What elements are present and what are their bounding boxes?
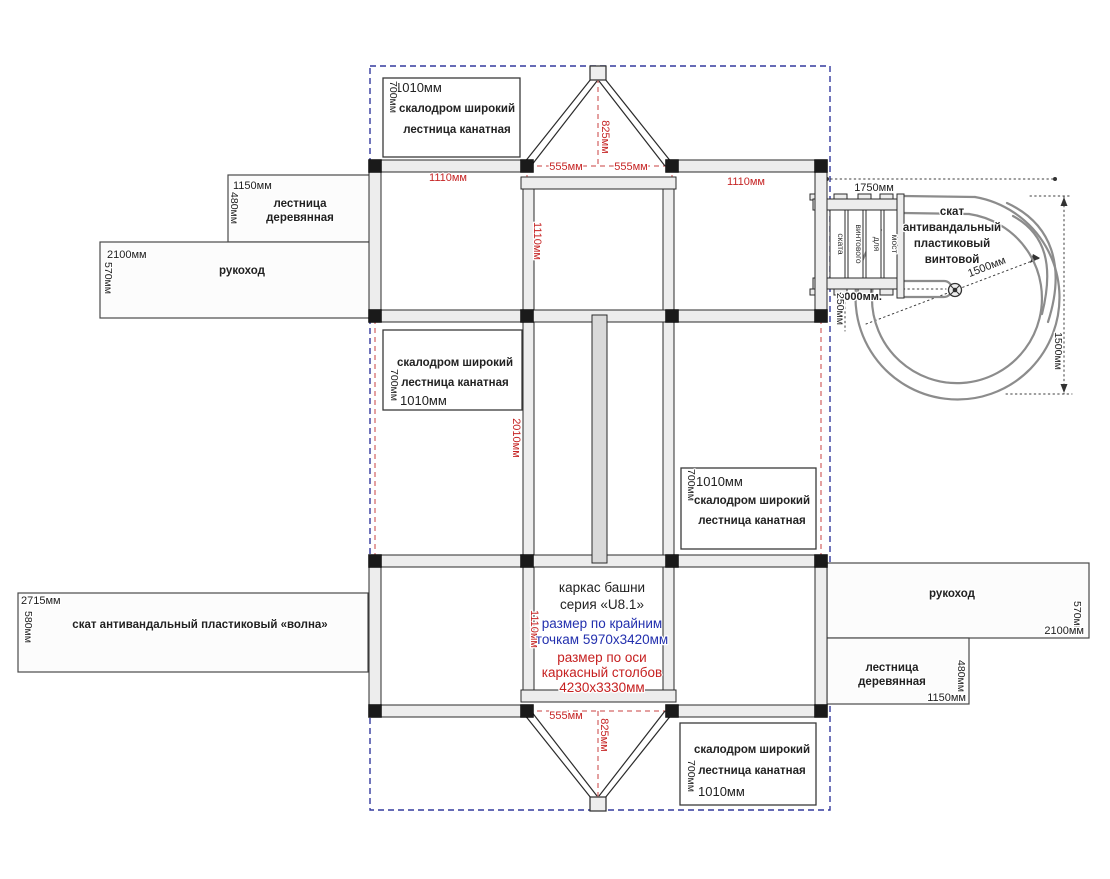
label-climb-br-row2: лестница канатная (698, 765, 805, 777)
title-name-line1: каркас башни (559, 580, 645, 595)
label-climb-br-height: 700мм (685, 760, 697, 792)
title-axis-line3: 4230х3330мм (559, 680, 644, 695)
dim-gable-bottom-width: 555мм (549, 710, 582, 722)
label-climb-mr-row2: лестница канатная (698, 515, 805, 527)
dim-corridor-height: 2010мм (510, 418, 522, 458)
label-ladder-right-row1: лестница (865, 662, 919, 674)
label-wave-height: 580мм (22, 611, 34, 643)
title-block: каркас башни серия «U8.1» размер по край… (536, 580, 668, 695)
dim-gable-top-left: 555мм (549, 161, 582, 173)
label-bridge-plank1: ската (836, 233, 846, 254)
title-axis-line1: размер по оси (557, 650, 646, 665)
label-wave-name: скат антивандальный пластиковый «волна» (72, 619, 327, 631)
label-spiral-row1: скат (940, 206, 965, 218)
blueprint-canvas: 1010мм 700мм скалодром широкий лестница … (0, 0, 1110, 879)
label-bridge-plank3: для (872, 237, 882, 252)
label-climb-br-width: 1010мм (698, 784, 745, 799)
label-ladder-left-height: 480мм (228, 192, 240, 224)
label-rukohod-left-height: 570мм (102, 262, 114, 294)
title-extreme-line2: точкам 5970х3420мм (536, 632, 668, 647)
label-spiral-row4: винтовой (925, 254, 980, 266)
title-name-line2: серия «U8.1» (560, 597, 644, 612)
wave-slide (18, 593, 368, 672)
label-climb-tl-width: 1010мм (395, 80, 442, 95)
label-climb-ml-row2: лестница канатная (401, 377, 508, 389)
corridor-center-beam (592, 315, 607, 563)
label-ladder-right-width: 1150мм (927, 692, 966, 704)
dim-spiral-diameter: 1500мм (1052, 332, 1064, 370)
label-rukohod-right-width: 2100мм (1044, 625, 1084, 637)
title-axis-line2: каркасный столбов (542, 665, 662, 680)
label-bridge-plank2: винтового (854, 224, 864, 264)
label-climb-br-row1: скалодром широкий (694, 744, 810, 756)
label-ladder-left-width: 1150мм (233, 180, 272, 192)
label-ladder-right-row2: деревянная (858, 676, 926, 688)
label-climb-ml-row1: скалодром широкий (397, 357, 513, 369)
label-rukohod-left-width: 2100мм (107, 249, 147, 261)
label-climb-ml-height: 700мм (388, 369, 400, 401)
label-spiral-row3: пластиковый (914, 238, 990, 250)
dim-gable-bottom-height: 825мм (598, 718, 610, 751)
dim-bay-top-left: 1110мм (429, 172, 467, 184)
label-climb-mr-row1: скалодром широкий (694, 495, 810, 507)
label-wave-width: 2715мм (21, 595, 61, 607)
label-ladder-left-row1: лестница (273, 198, 327, 210)
label-climb-tl-height: 700мм (387, 81, 399, 113)
label-rukohod-left-name: рукоход (219, 265, 266, 277)
label-climb-tl-row1: скалодром широкий (399, 103, 515, 115)
label-ladder-right-height: 480мм (955, 660, 967, 692)
label-climb-ml-width: 1010мм (400, 393, 447, 408)
label-spiral-row2: антивандальный (903, 222, 1001, 234)
dim-bay-top-right: 1110мм (727, 176, 765, 188)
dim-gable-top-right: 555мм (614, 161, 647, 173)
label-rukohod-right-name: рукоход (929, 588, 976, 600)
tower-frame-drawing: 1010мм 700мм скалодром широкий лестница … (0, 0, 1110, 879)
label-bridge-plank4: мост (890, 235, 900, 254)
dim-bridge-offset: 250мм (834, 293, 846, 325)
label-ladder-left-row2: деревянная (266, 212, 334, 224)
dim-bay-center-vert: 1110мм (531, 222, 543, 260)
label-climb-mr-width: 1010мм (696, 474, 743, 489)
label-climb-tl-row2: лестница канатная (403, 124, 510, 136)
dim-bridge-span: 1750мм (854, 182, 894, 194)
title-extreme-line1: размер по крайним (542, 616, 662, 631)
dim-gable-top-height: 825мм (599, 120, 611, 153)
